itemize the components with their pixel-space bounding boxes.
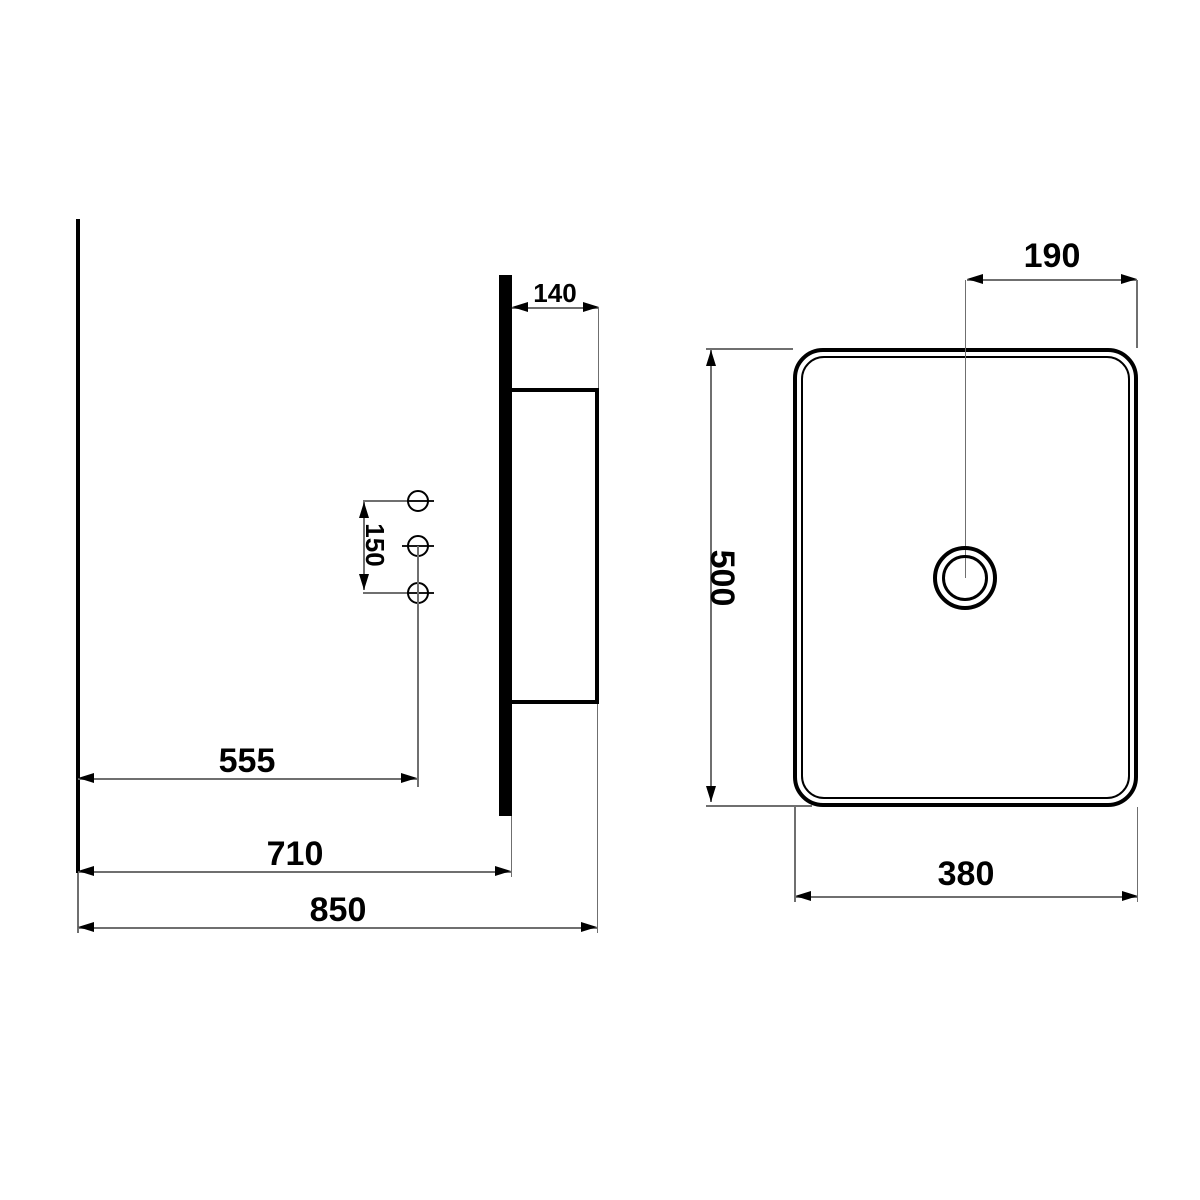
faucet-hole-top xyxy=(407,490,429,512)
dim-710-extension-line xyxy=(511,816,513,877)
dim-380-extension-left xyxy=(794,807,796,902)
dim-150-extension-bottom xyxy=(363,592,407,594)
dim-190-line xyxy=(967,279,1137,281)
drawing-canvas: 140 150 555 710 850 xyxy=(0,0,1200,1200)
dim-500-arrow-bottom xyxy=(706,786,716,802)
dim-710-arrow-right xyxy=(495,866,511,876)
dim-710-label: 710 xyxy=(235,837,355,871)
dim-555-arrow-right xyxy=(401,773,417,783)
dim-850-arrow-right xyxy=(581,922,597,932)
dim-380-arrow-left xyxy=(795,891,811,901)
mounting-bracket xyxy=(499,275,512,816)
dim-190-label: 190 xyxy=(992,239,1112,273)
dim-500-extension-bottom xyxy=(706,805,812,807)
dim-500-arrow-top xyxy=(706,350,716,366)
dim-380-label: 380 xyxy=(906,857,1026,891)
dim-140-extension-line xyxy=(598,307,600,388)
dim-555-label: 555 xyxy=(187,744,307,778)
dim-380-line xyxy=(795,896,1138,898)
dim-850-label: 850 xyxy=(278,893,398,927)
dim-500-label: 500 xyxy=(705,518,739,638)
dim-850-arrow-left xyxy=(78,922,94,932)
dim-500-extension-top xyxy=(706,348,793,350)
dim-555-arrow-left xyxy=(78,773,94,783)
dim-190-arrow-right xyxy=(1121,274,1137,284)
dim-150-label: 150 xyxy=(362,505,388,585)
dim-710-arrow-left xyxy=(78,866,94,876)
drain-centerline xyxy=(965,280,967,578)
basin-side-profile xyxy=(512,388,599,704)
dim-190-arrow-left xyxy=(967,274,983,284)
dim-140-label: 140 xyxy=(515,280,595,306)
dim-150-extension-top xyxy=(363,500,407,502)
dim-850-extension-line xyxy=(597,704,599,933)
holes-centerline xyxy=(417,546,419,787)
drain-inner-circle xyxy=(942,555,988,601)
dim-190-extension-line xyxy=(1136,280,1138,348)
dim-380-extension-right xyxy=(1137,807,1139,902)
